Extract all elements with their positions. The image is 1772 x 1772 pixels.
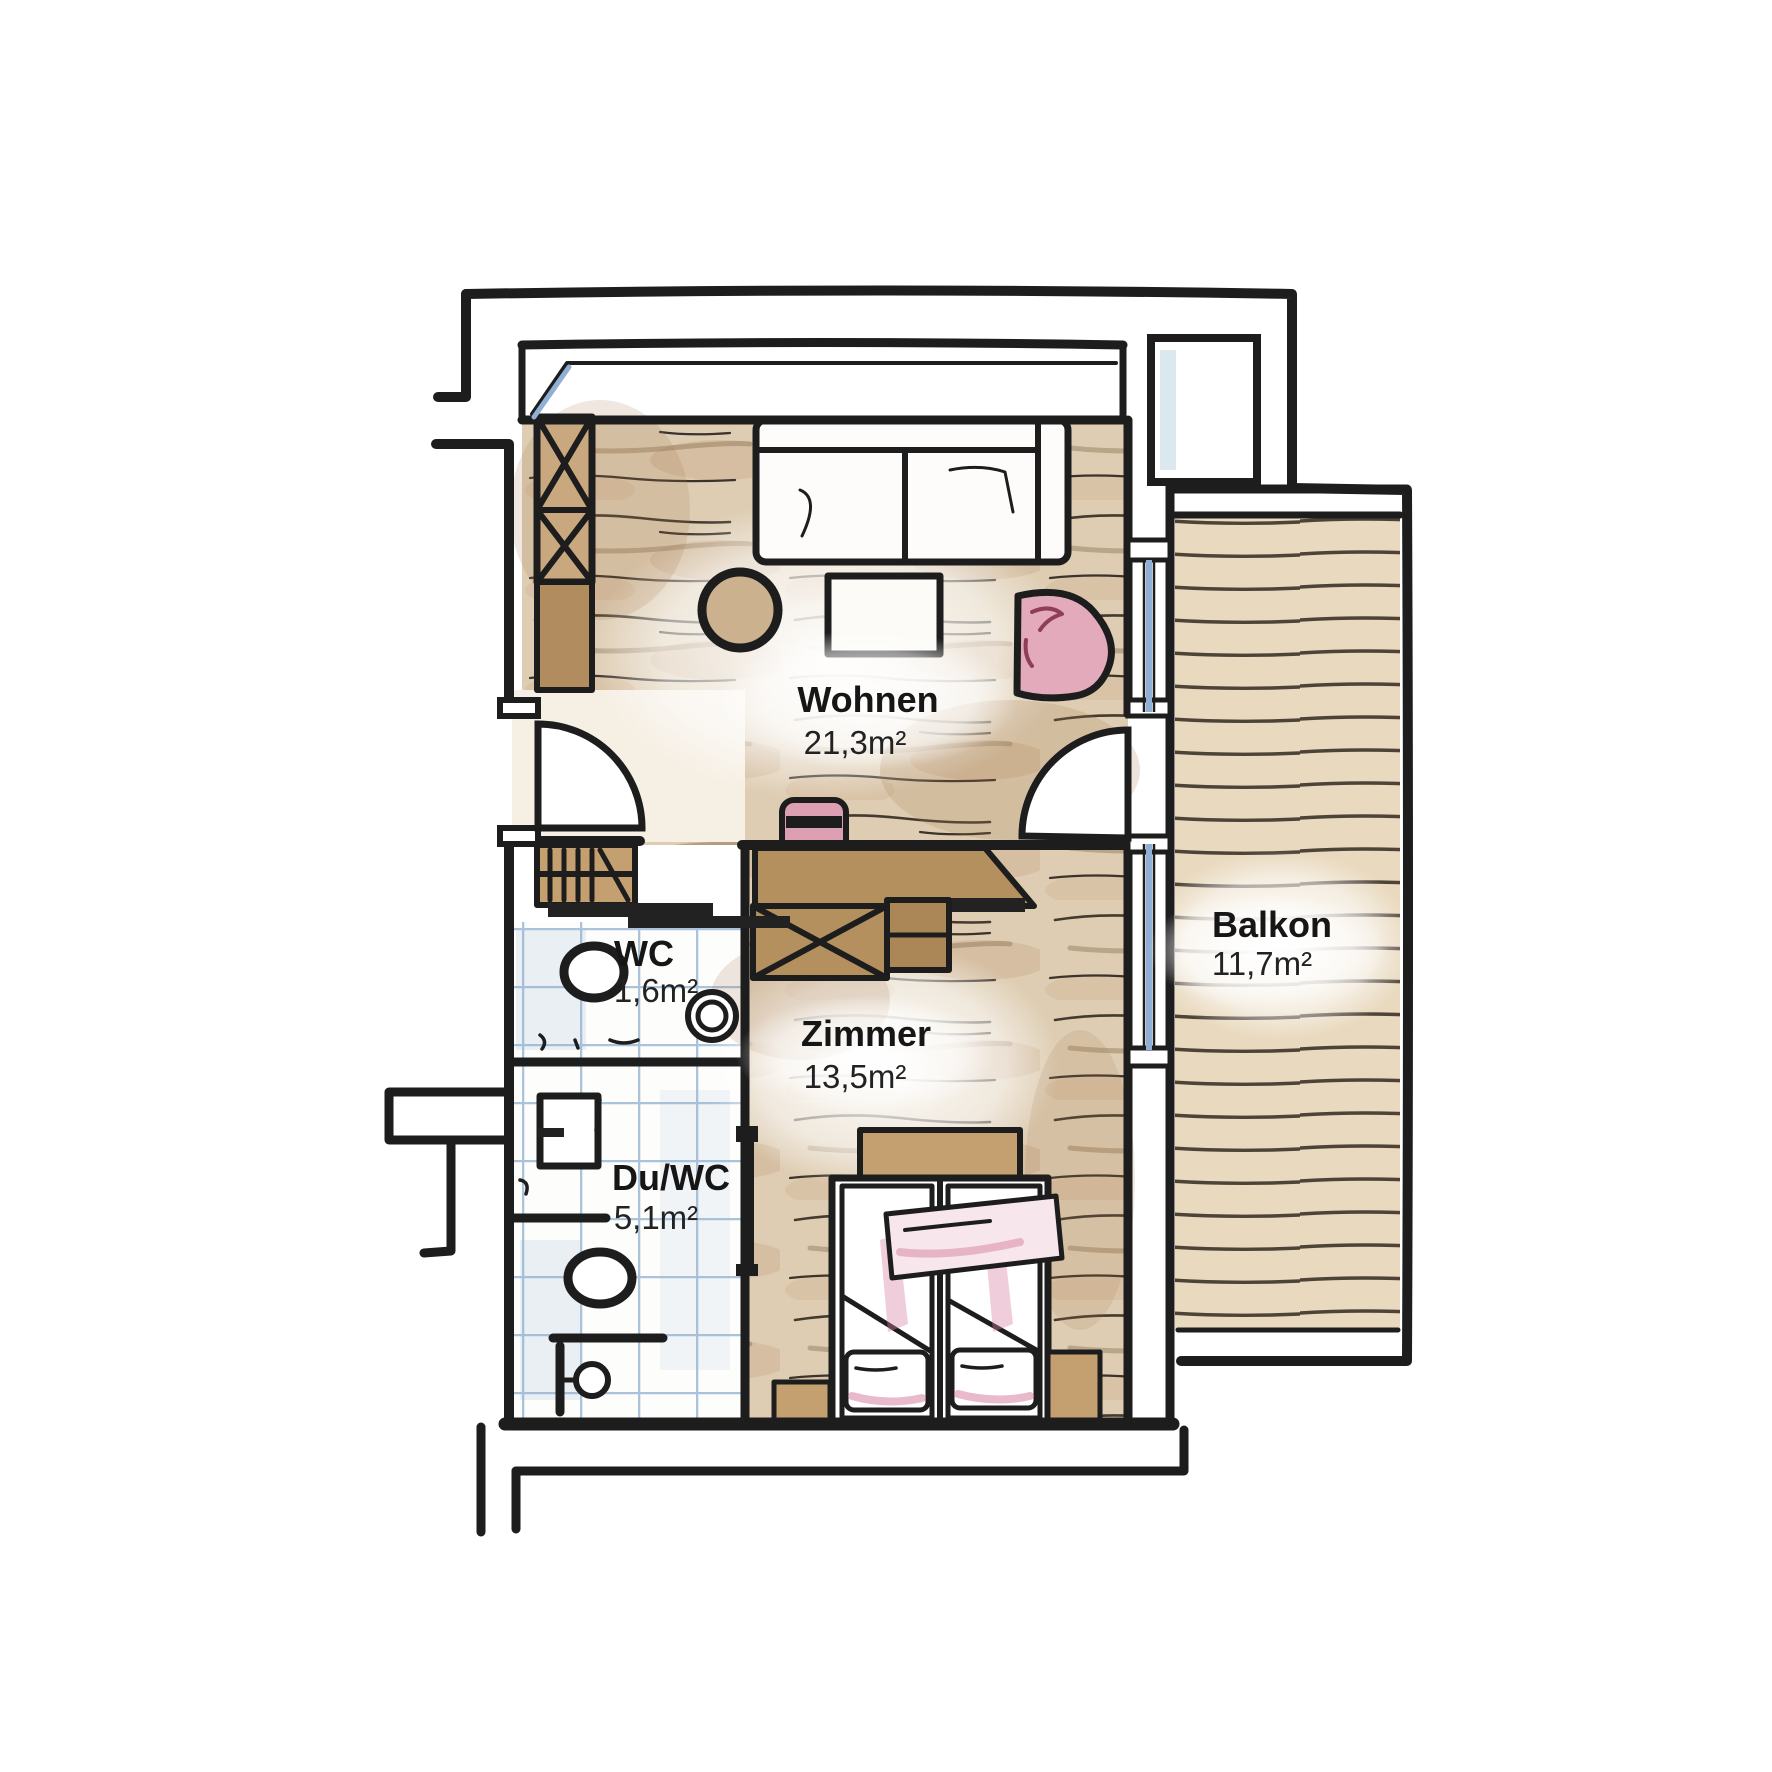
floor-plan-drawing: Wohnen 21,3m² Balkon 11,7m² WC 1,6m² Zim…	[0, 0, 1772, 1772]
window-cap-4	[1128, 1048, 1170, 1066]
wardrobe-x	[537, 417, 592, 690]
room-label-wc: WC	[614, 933, 674, 974]
floor-plan-page: Wohnen 21,3m² Balkon 11,7m² WC 1,6m² Zim…	[0, 0, 1772, 1772]
room-label-balkon: Balkon	[1212, 904, 1332, 945]
entry-cap-bottom	[500, 828, 538, 844]
room-label-wohnen: Wohnen	[797, 679, 938, 720]
room-label-duwc: Du/WC	[612, 1157, 730, 1198]
room-area-wc: 1,6m²	[614, 972, 698, 1009]
room-area-wohnen: 21,3m²	[804, 724, 907, 761]
room-area-zimmer: 13,5m²	[804, 1058, 907, 1095]
bedside-bench-right	[1048, 1352, 1100, 1424]
shaft	[1151, 338, 1257, 482]
tap-icon	[538, 1128, 564, 1137]
sofa	[756, 420, 1070, 562]
coat-rack	[537, 845, 635, 905]
entry-cap-top	[500, 700, 538, 716]
headboard	[860, 1130, 1020, 1178]
exterior-notch	[389, 1092, 509, 1140]
wc-sliding-door	[548, 903, 713, 917]
room-label-zimmer: Zimmer	[801, 1013, 931, 1054]
pouf	[702, 572, 778, 648]
sideboard-x	[753, 900, 949, 978]
toilet-duwc	[568, 1252, 632, 1304]
window-cap-1	[1128, 540, 1170, 560]
room-area-balkon: 11,7m²	[1212, 945, 1312, 982]
room-area-duwc: 5,1m²	[614, 1199, 698, 1236]
duwc-sliding-door	[741, 1142, 754, 1264]
